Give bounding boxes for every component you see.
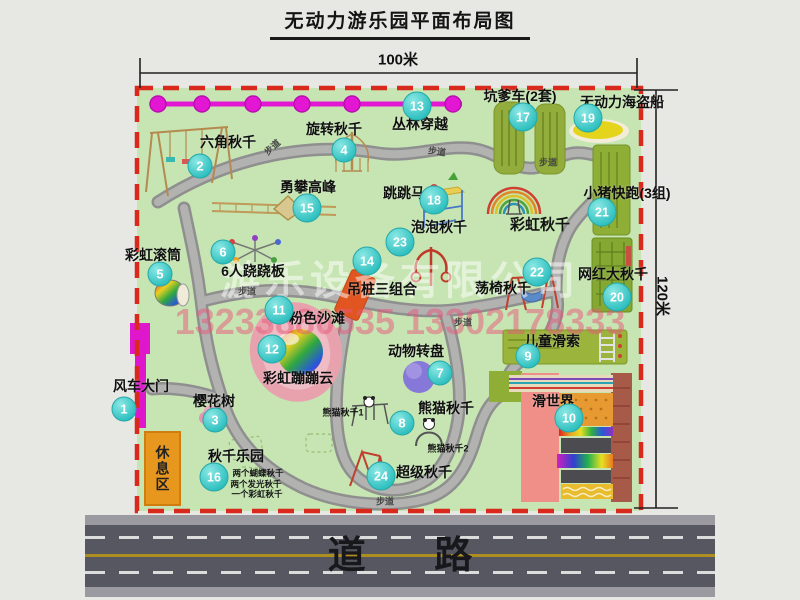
panda-swing-2-label: 熊猫秋千2 xyxy=(427,442,468,455)
poi-label-11: 粉色沙滩 xyxy=(289,308,345,328)
poi-label-24: 超级秋千 xyxy=(396,462,452,482)
poi-label-22: 荡椅秋千 xyxy=(475,278,531,298)
poi-marker-12: 12 xyxy=(258,335,287,364)
poi-label-4: 旋转秋千 xyxy=(306,119,362,139)
panda-swing-1-label: 熊猫秋千1 xyxy=(322,406,363,419)
poi-label-5: 彩虹滚筒 xyxy=(125,245,181,265)
poi-marker-13: 13 xyxy=(403,92,432,121)
poi-marker-21: 21 xyxy=(588,198,617,227)
poi-marker-23: 23 xyxy=(386,228,415,257)
poi-label-23: 泡泡秋千 xyxy=(411,217,467,237)
walkway-label: 步道 xyxy=(261,136,283,158)
page-title: 无动力游乐园平面布局图 xyxy=(270,6,529,40)
poi-marker-19: 19 xyxy=(574,104,603,133)
poi-marker-24: 24 xyxy=(367,462,396,491)
poi-label-6: 6人跷跷板 xyxy=(221,261,285,281)
poi-marker-15: 15 xyxy=(293,194,322,223)
walkway-label: 步道 xyxy=(539,156,557,169)
walkway-label: 步道 xyxy=(454,316,472,329)
poi-label-2: 六角秋千 xyxy=(200,132,256,152)
poi-label-1: 风车大门 xyxy=(113,376,169,396)
title-bar: 无动力游乐园平面布局图 xyxy=(0,6,800,40)
walkway-label: 步道 xyxy=(376,495,394,508)
poi-marker-8: 8 xyxy=(390,411,415,436)
poi-marker-14: 14 xyxy=(353,247,382,276)
walkway-label: 步道 xyxy=(238,285,256,298)
poi-label-7: 动物转盘 xyxy=(388,341,444,361)
poi-marker-4: 4 xyxy=(332,138,357,163)
poi-marker-6: 6 xyxy=(211,240,236,265)
playground-plan-page: 无动力游乐园平面布局图 100米 120米 xyxy=(0,0,800,600)
poi-marker-20: 20 xyxy=(603,283,632,312)
poi-marker-18: 18 xyxy=(420,186,449,215)
dimension-height-label: 120米 xyxy=(653,276,674,316)
poi-marker-2: 2 xyxy=(188,154,213,179)
poi-marker-3: 3 xyxy=(203,408,228,433)
poi-label-8: 熊猫秋千 xyxy=(418,398,474,418)
poi-label-12: 彩虹蹦蹦云 xyxy=(263,368,333,388)
poi-label-20: 网红大秋千 xyxy=(578,264,648,284)
walkway-label: 步道 xyxy=(427,143,447,158)
poi-marker-1: 1 xyxy=(112,397,137,422)
dimension-width-label: 100米 xyxy=(378,49,418,70)
poi-marker-22: 22 xyxy=(523,258,552,287)
poi-marker-10: 10 xyxy=(555,404,584,433)
poi-marker-9: 9 xyxy=(516,344,541,369)
poi-marker-5: 5 xyxy=(148,262,173,287)
poi-marker-7: 7 xyxy=(428,361,453,386)
poi-layer: 风车大门1六角秋千2樱花树3旋转秋千4彩虹滚筒56人跷跷板6动物转盘7熊猫秋千8… xyxy=(0,0,800,600)
poi-marker-17: 17 xyxy=(509,103,538,132)
poi-marker-11: 11 xyxy=(265,296,294,325)
rainbow-swing-label: 彩虹秋千 xyxy=(510,214,570,235)
swing-park-note-3: 一个彩虹秋千 xyxy=(231,488,282,500)
poi-marker-16: 16 xyxy=(200,463,229,492)
poi-label-14: 吊桩三组合 xyxy=(347,279,417,299)
